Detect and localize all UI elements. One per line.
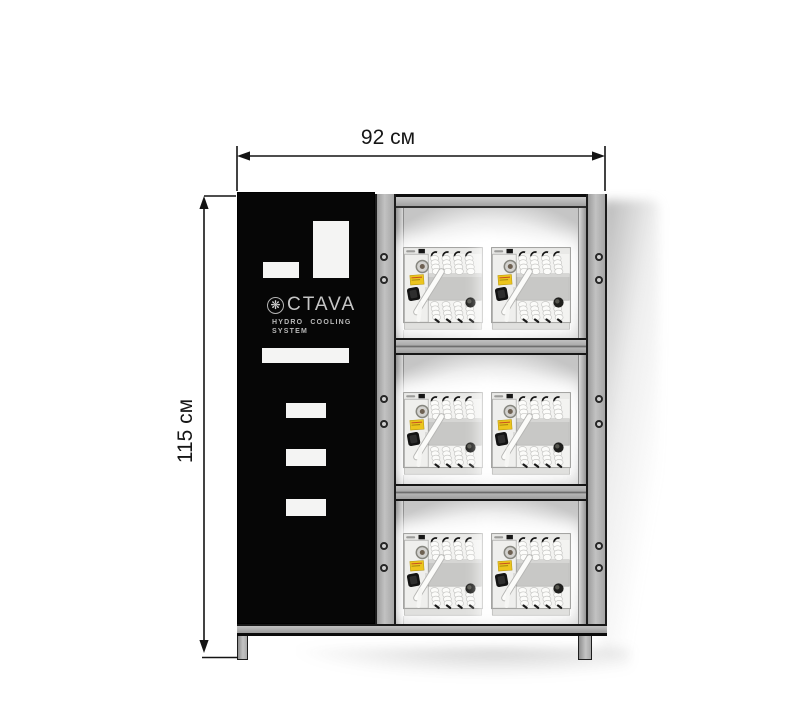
mounting-hole bbox=[380, 420, 388, 428]
panel-cutout-slot-1 bbox=[286, 403, 326, 418]
mounting-hole bbox=[595, 253, 603, 261]
cooling-unit bbox=[491, 533, 571, 616]
cooling-unit bbox=[403, 392, 483, 475]
height-dimension-label: 115 см bbox=[174, 371, 198, 491]
cabinet-leg-right bbox=[578, 636, 592, 660]
shelf-row-1 bbox=[396, 207, 586, 338]
brand-logo: ❋ CTAVA HYDRO COOLING SYSTEM bbox=[267, 294, 356, 335]
mounting-hole bbox=[595, 395, 603, 403]
dimension-diagram: ❋ CTAVA HYDRO COOLING SYSTEM bbox=[0, 0, 807, 727]
mounting-hole bbox=[380, 542, 388, 550]
cooling-unit bbox=[491, 392, 571, 475]
shelf-row-2 bbox=[396, 355, 586, 484]
cooling-cabinet: ❋ CTAVA HYDRO COOLING SYSTEM bbox=[237, 192, 607, 636]
cooling-unit bbox=[403, 247, 483, 330]
panel-cutout-tall bbox=[313, 221, 349, 278]
panel-cutout-wide bbox=[262, 348, 349, 363]
panel-cutout-slot-2 bbox=[286, 449, 326, 466]
mounting-hole bbox=[595, 276, 603, 284]
width-dimension-label: 92 см bbox=[204, 126, 572, 150]
shelf-mid-rail-1 bbox=[375, 338, 607, 355]
shelf-mid-rail-2 bbox=[375, 484, 607, 501]
front-panel: ❋ CTAVA HYDRO COOLING SYSTEM bbox=[237, 192, 375, 624]
mounting-hole bbox=[595, 542, 603, 550]
mounting-hole bbox=[380, 395, 388, 403]
cabinet-leg-left bbox=[237, 636, 248, 660]
snowflake-icon: ❋ bbox=[267, 297, 284, 314]
shelf-row-3 bbox=[396, 501, 586, 624]
rack-bottom-rail bbox=[237, 624, 607, 636]
cooling-unit bbox=[491, 247, 571, 330]
mounting-hole bbox=[380, 253, 388, 261]
brand-text: CTAVA bbox=[287, 294, 356, 316]
panel-cutout-slot-3 bbox=[286, 499, 326, 516]
panel-cutout-small bbox=[263, 262, 299, 278]
mounting-hole bbox=[595, 420, 603, 428]
cooling-unit bbox=[403, 533, 483, 616]
rack-post-left bbox=[375, 194, 396, 624]
mounting-hole bbox=[380, 564, 388, 572]
rack-post-right bbox=[586, 194, 607, 624]
rack-frame bbox=[375, 192, 607, 624]
cast-shadow-right bbox=[601, 200, 659, 658]
rack-top-rail bbox=[375, 194, 607, 208]
mounting-hole bbox=[380, 276, 388, 284]
mounting-hole bbox=[595, 564, 603, 572]
brand-tagline-line2: SYSTEM bbox=[272, 328, 356, 335]
brand-tagline-line1: HYDRO COOLING bbox=[272, 319, 356, 326]
